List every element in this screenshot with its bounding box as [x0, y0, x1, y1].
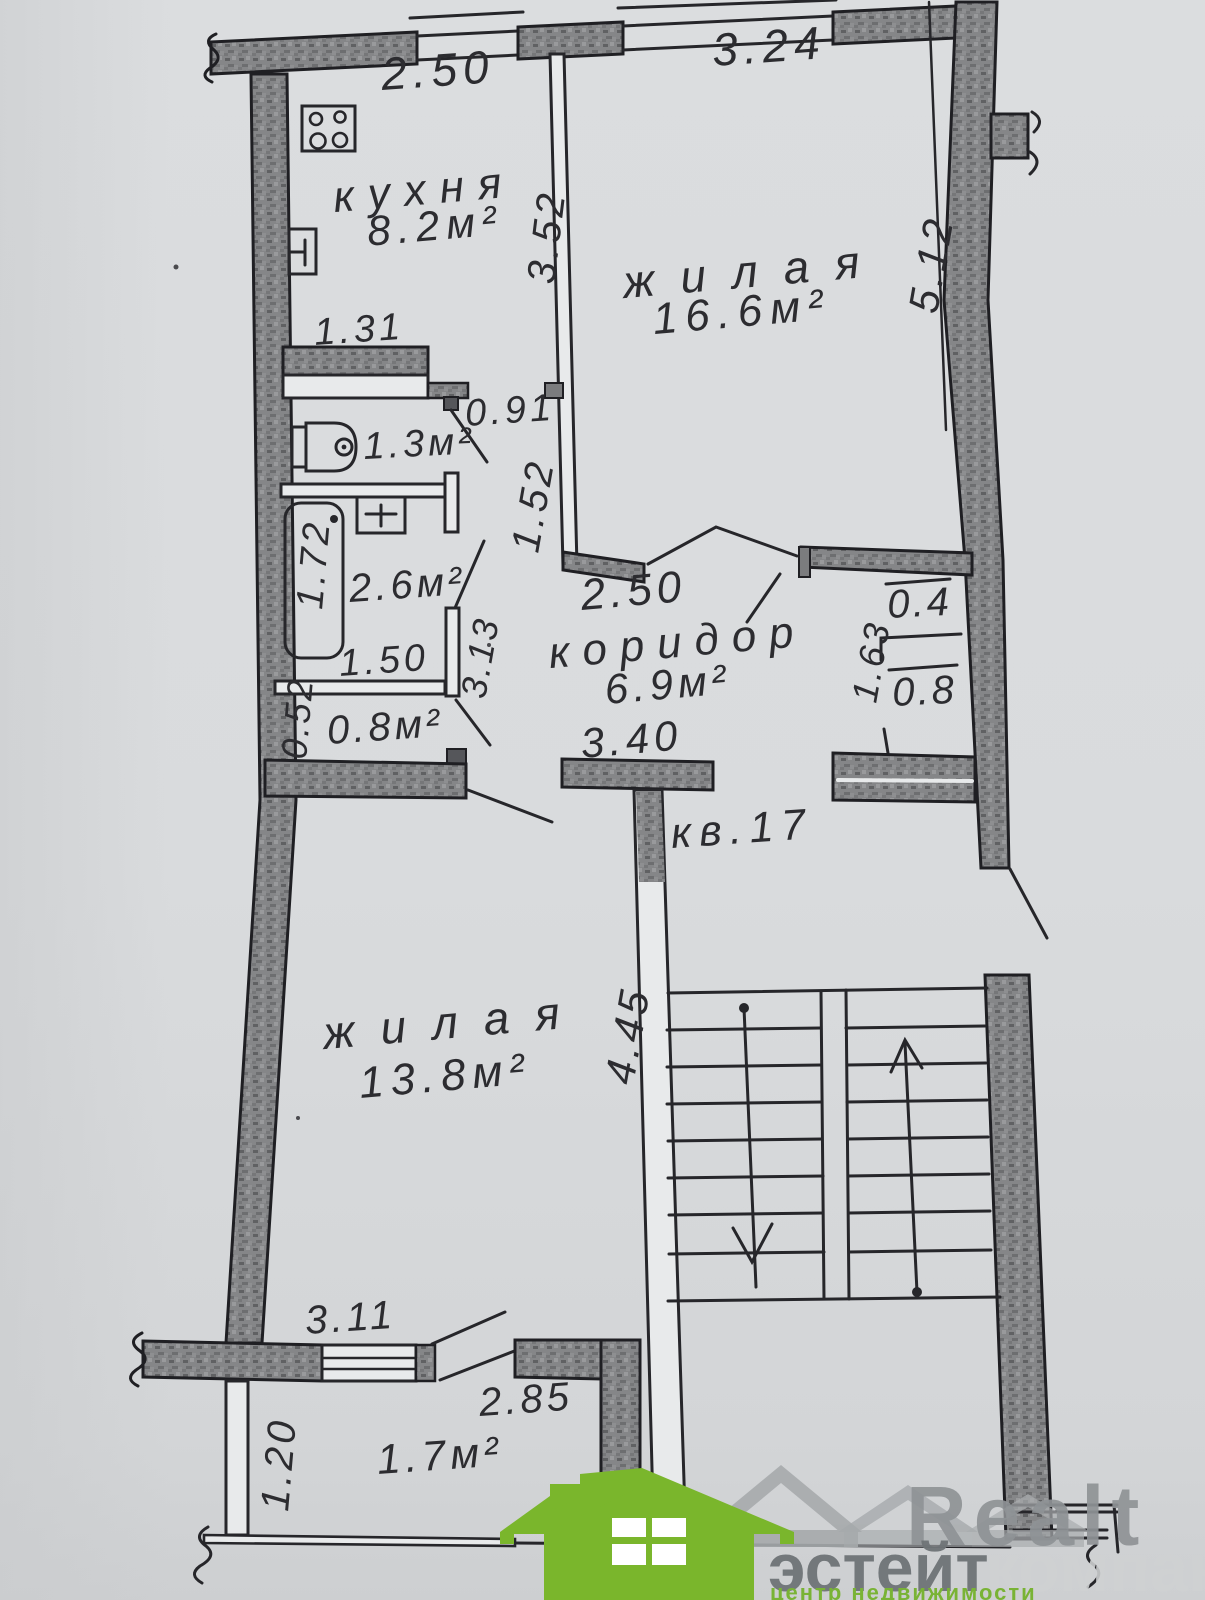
- svg-text:3.24: 3.24: [710, 16, 827, 76]
- svg-text:1.50: 1.50: [338, 637, 431, 685]
- svg-text:2.85: 2.85: [477, 1375, 575, 1426]
- svg-text:2.50: 2.50: [578, 562, 689, 620]
- svg-text:0.91: 0.91: [464, 387, 557, 435]
- svg-text:0.8м²: 0.8м²: [326, 701, 445, 753]
- svg-text:1.7м²: 1.7м²: [375, 1427, 504, 1483]
- svg-text:3.40: 3.40: [579, 711, 684, 767]
- svg-text:кв.17: кв.17: [669, 800, 815, 858]
- svg-text:0.8: 0.8: [891, 668, 958, 715]
- svg-text:3.11: 3.11: [304, 1293, 398, 1343]
- svg-text:2.6м²: 2.6м²: [347, 559, 467, 611]
- svg-text:центр недвижимости: центр недвижимости: [770, 1580, 1037, 1600]
- svg-text:1.20: 1.20: [253, 1415, 305, 1512]
- svg-text:1.31: 1.31: [313, 306, 406, 354]
- svg-text:0.52: 0.52: [273, 675, 321, 760]
- svg-text:2.50: 2.50: [378, 40, 496, 100]
- svg-text:1.3м²: 1.3м²: [362, 420, 476, 468]
- svg-text:1.72: 1.72: [289, 517, 339, 610]
- svg-text:0.4: 0.4: [886, 580, 953, 627]
